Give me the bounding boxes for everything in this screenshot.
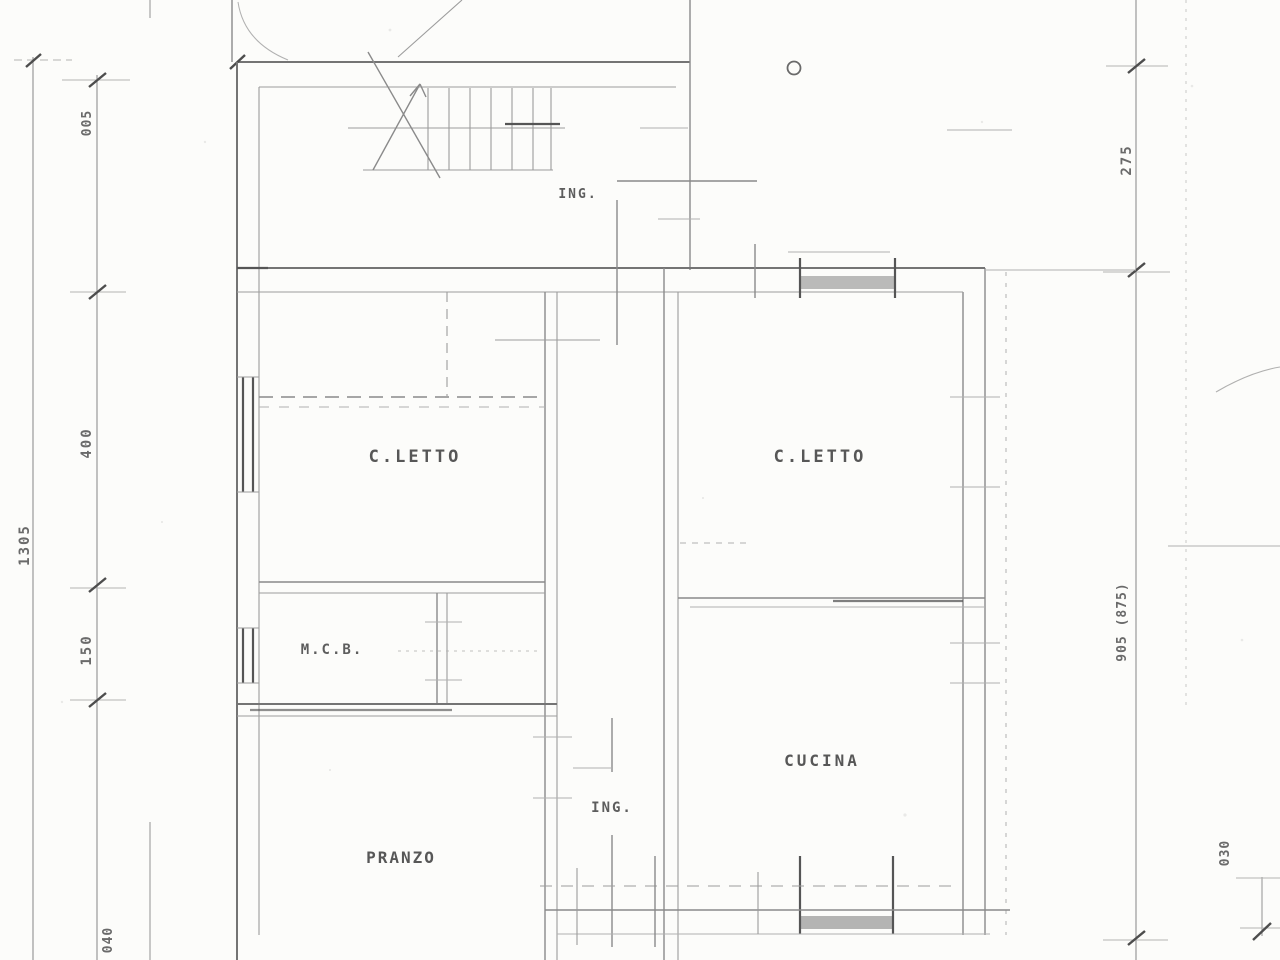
room-label-pranzo: PRANZO [366,848,436,867]
stair-direction-arrow [373,84,420,170]
room-label-ing-bottom: ING. [591,800,633,816]
dim-left-total: 1305 [17,524,33,566]
dimension-left-inner: 005 400 150 040 [62,73,130,960]
dashed-partitions [259,292,545,407]
dimension-right: 275 905 (875) [1103,0,1280,960]
dimension-right-bottom: 030 [1218,840,1280,940]
window-left-wall-upper [237,377,259,492]
room-labels: ING. C.LETTO C.LETTO M.C.B. CUCINA ING. … [301,187,867,867]
room-label-mcb: M.C.B. [301,642,364,658]
room-label-cletto-left: C.LETTO [369,447,462,467]
room-label-cletto-right: C.LETTO [774,447,867,467]
dim-right-bottom: 030 [1218,840,1233,866]
dimension-left-total: 1305 [14,54,72,960]
middle-wall [237,130,1136,298]
exterior-walls [230,0,1006,960]
floor-plan-page: 1305 005 400 150 040 275 905 (875) 0 [0,0,1280,960]
dim-right-main: 905 (875) [1115,582,1130,661]
circle-marker [788,62,801,75]
dim-right-top: 275 [1119,144,1135,175]
dim-left-bottom: 040 [101,927,116,953]
dim-left-upper: 400 [79,427,95,458]
window-bottom-cucina [800,856,893,934]
dim-left-lower: 150 [79,634,95,665]
top-edge-lines [232,0,462,62]
scan-noise [61,29,1243,817]
window-left-wall-lower [237,628,259,683]
interior-walls [237,200,1000,960]
stairs [348,52,757,219]
wall-curve [1216,367,1280,392]
room-label-cucina: CUCINA [784,751,860,770]
bottom-walls [540,856,1010,947]
floor-plan-canvas: 1305 005 400 150 040 275 905 (875) 0 [0,0,1280,960]
dim-left-small-top: 005 [80,110,95,136]
room-label-ing-top: ING. [558,187,597,202]
window-top-right-room [788,252,895,298]
